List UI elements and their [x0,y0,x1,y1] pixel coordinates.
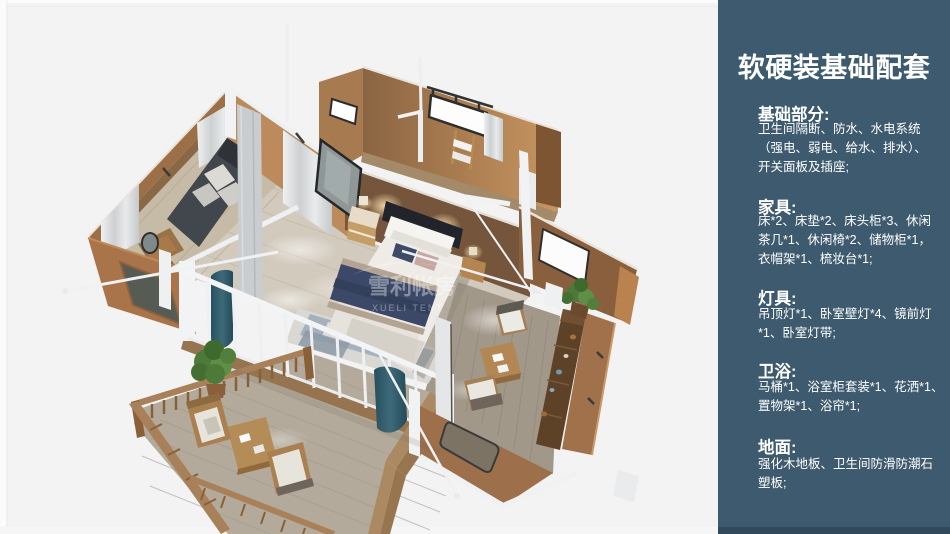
svg-text:雪利帐房: 雪利帐房 [368,274,456,299]
svg-text:XUELI TENT: XUELI TENT [372,303,444,313]
